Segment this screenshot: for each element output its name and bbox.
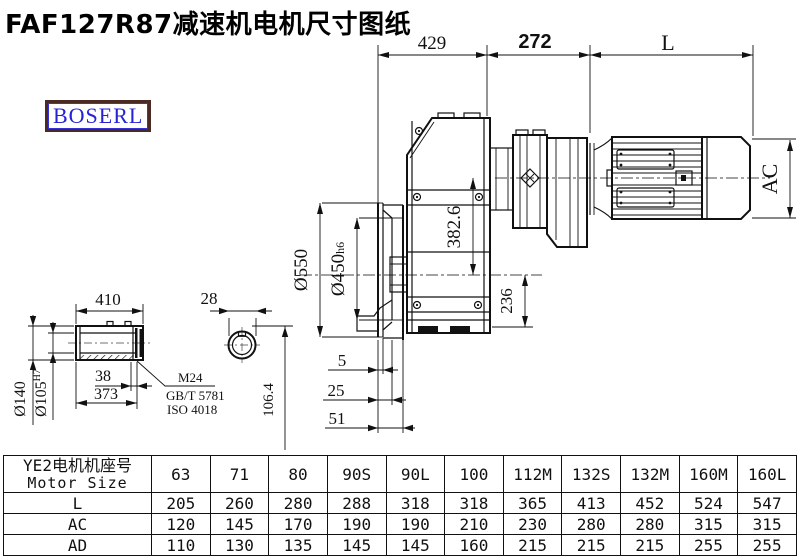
table-cell: 210	[445, 514, 504, 535]
dim-105H7: Ø105H7	[32, 369, 50, 417]
size-col-header: 63	[152, 456, 211, 493]
table-cell: 288	[327, 493, 386, 514]
dim-106-4: 106.4	[261, 383, 277, 417]
motor-size-table: YE2电机机座号 Motor Size 63 71 80 90S 90L 100…	[3, 455, 797, 556]
table-cell: 255	[738, 535, 797, 556]
note-m24: M24	[178, 370, 203, 385]
table-cell: 215	[503, 535, 562, 556]
table-cell: 145	[327, 535, 386, 556]
size-col-header: 71	[210, 456, 269, 493]
size-col-header: 160L	[738, 456, 797, 493]
table-cell: 145	[210, 514, 269, 535]
table-cell: 215	[562, 535, 621, 556]
table-cell: 318	[445, 493, 504, 514]
row-label: L	[4, 493, 152, 514]
table-cell: 190	[327, 514, 386, 535]
dim-236: 236	[497, 288, 516, 314]
table-cell: 315	[679, 514, 738, 535]
table-cell: 130	[210, 535, 269, 556]
table-cell: 135	[269, 535, 328, 556]
row-label: AC	[4, 514, 152, 535]
size-col-header: 112M	[503, 456, 562, 493]
size-col-header: 132S	[562, 456, 621, 493]
table-header-row: YE2电机机座号 Motor Size 63 71 80 90S 90L 100…	[4, 456, 797, 493]
dim-382-6: 382.6	[444, 206, 465, 249]
table-cell: 120	[152, 514, 211, 535]
table-row-AC: AC 120 145 170 190 190 210 230 280 280 3…	[4, 514, 797, 535]
dim-25: 25	[328, 381, 345, 400]
size-col-header: 160M	[679, 456, 738, 493]
table-cell: 318	[386, 493, 445, 514]
table-cell: 413	[562, 493, 621, 514]
header-en: Motor Size	[4, 475, 151, 491]
dim-5: 5	[338, 351, 347, 370]
table-cell: 260	[210, 493, 269, 514]
size-col-header: 132M	[621, 456, 680, 493]
r87-reducer-unit	[490, 130, 612, 247]
table-cell: 230	[503, 514, 562, 535]
table-cell: 145	[386, 535, 445, 556]
table-cell: 280	[621, 514, 680, 535]
output-flange	[357, 203, 407, 340]
note-gbt5781: GB/T 5781	[166, 388, 225, 403]
table-cell: 205	[152, 493, 211, 514]
size-col-header: 90S	[327, 456, 386, 493]
dim-L: L	[661, 30, 674, 55]
row-label: AD	[4, 535, 152, 556]
table-cell: 255	[679, 535, 738, 556]
center-lines	[68, 178, 770, 363]
size-col-header: 100	[445, 456, 504, 493]
dimension-labels: 429 272 L AC 382.6 236 Ø550 Ø450h6 410 Ø…	[12, 30, 782, 428]
table-cell: 524	[679, 493, 738, 514]
table-row-AD: AD 110 130 135 145 145 160 215 215 215 2…	[4, 535, 797, 556]
dim-140: Ø140	[12, 381, 29, 417]
dim-38: 38	[95, 368, 111, 385]
dim-AC: AC	[757, 164, 782, 195]
size-col-header: 90L	[386, 456, 445, 493]
table-cell: 110	[152, 535, 211, 556]
dim-550: Ø550	[291, 249, 312, 291]
dim-373: 373	[94, 386, 118, 403]
motor-size-header: YE2电机机座号 Motor Size	[4, 456, 152, 493]
table-cell: 160	[445, 535, 504, 556]
table-cell: 547	[738, 493, 797, 514]
size-col-header: 80	[269, 456, 328, 493]
dim-51: 51	[329, 409, 346, 428]
header-cn: YE2电机机座号	[4, 457, 151, 475]
table-cell: 215	[621, 535, 680, 556]
dim-429: 429	[418, 33, 447, 54]
table-cell: 280	[269, 493, 328, 514]
drawing-page: FAF127R87减速机电机尺寸图纸 BOSERL	[0, 0, 800, 557]
technical-drawing: 429 272 L AC 382.6 236 Ø550 Ø450h6 410 Ø…	[0, 0, 800, 455]
hollow-shaft-view	[76, 322, 143, 361]
table-cell: 170	[269, 514, 328, 535]
table-row-L: L 205 260 280 288 318 318 365 413 452 52…	[4, 493, 797, 514]
dim-28: 28	[201, 289, 218, 308]
table-cell: 280	[562, 514, 621, 535]
note-iso4018: ISO 4018	[167, 402, 217, 417]
dim-450h6: Ø450h6	[328, 242, 349, 296]
table-cell: 365	[503, 493, 562, 514]
dim-272: 272	[518, 31, 551, 53]
table-cell: 452	[621, 493, 680, 514]
dim-410: 410	[95, 290, 121, 309]
motor-fins	[613, 143, 701, 215]
table-cell: 190	[386, 514, 445, 535]
table-cell: 315	[738, 514, 797, 535]
